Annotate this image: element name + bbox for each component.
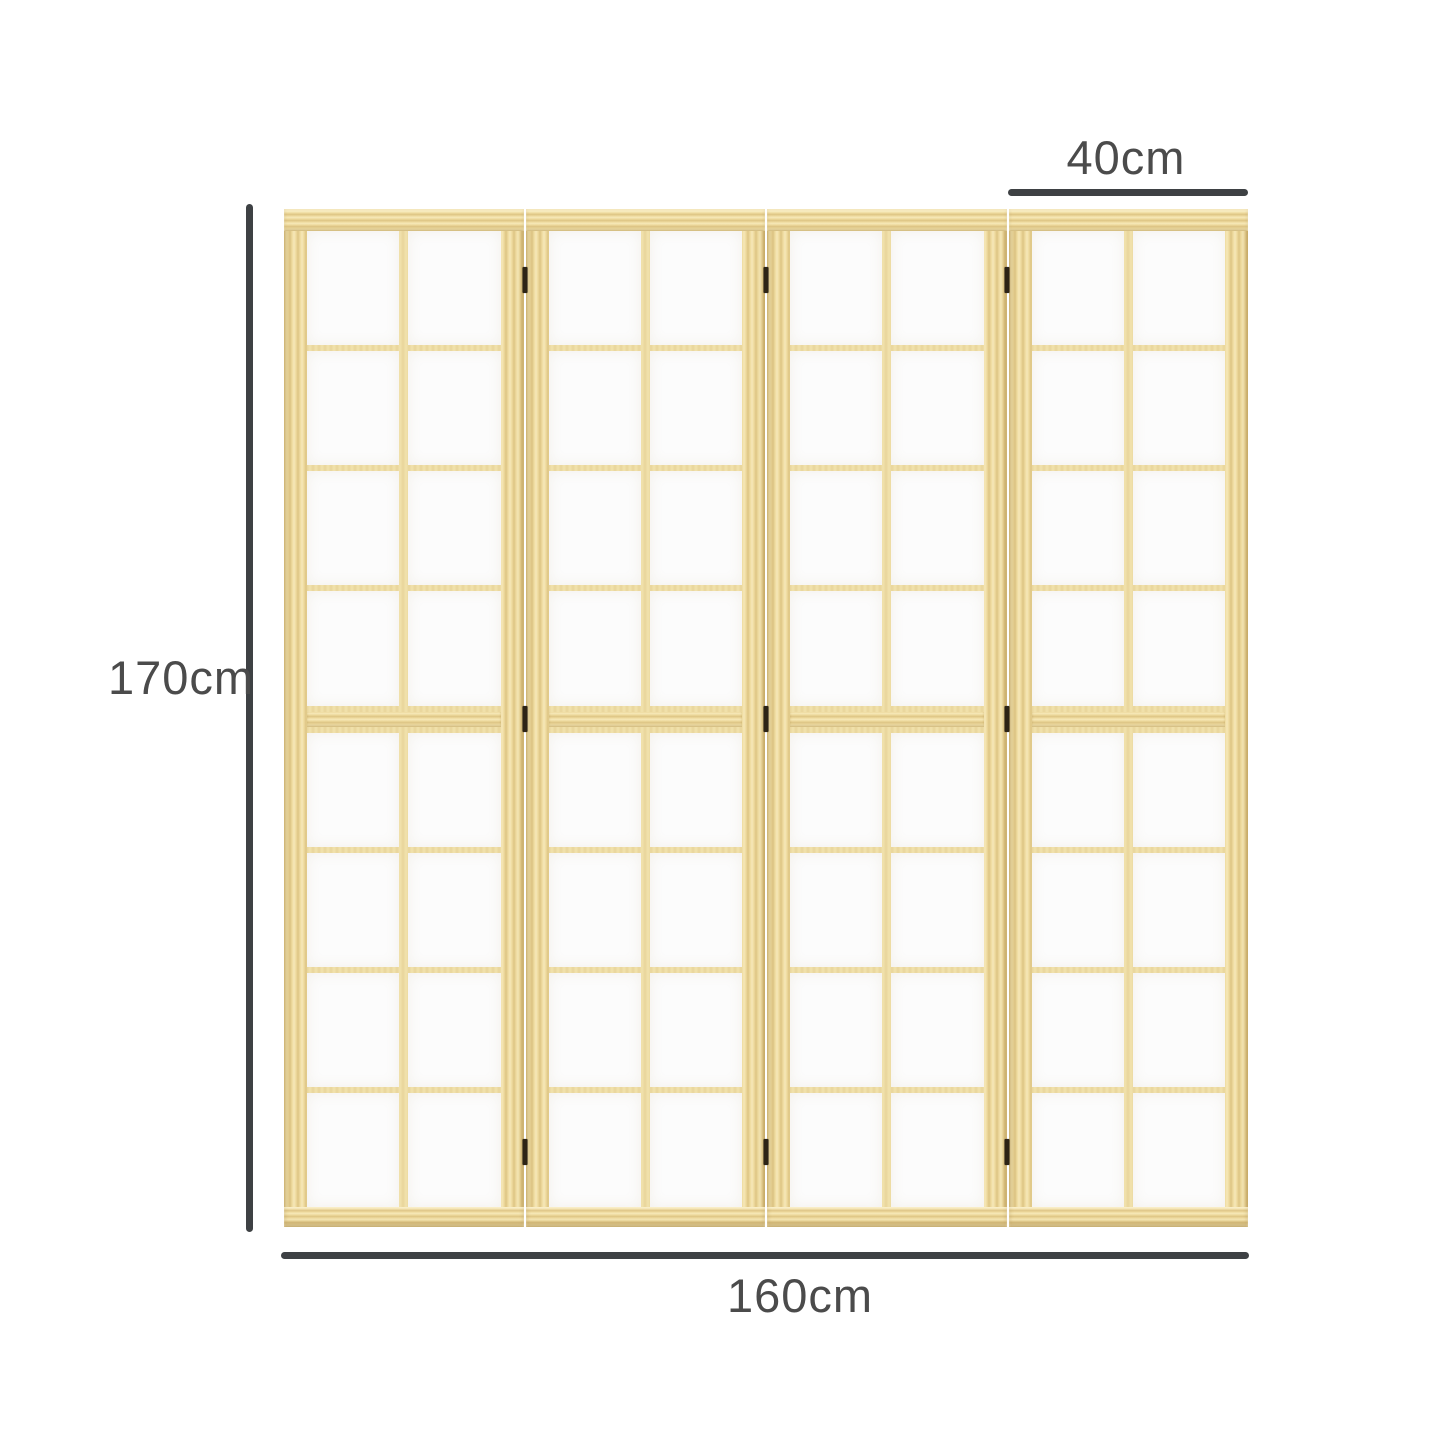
shoji-paper-cell [790, 231, 882, 345]
hinge [523, 1139, 528, 1165]
shoji-paper-cell [408, 231, 500, 345]
shoji-paper-cell [549, 591, 641, 705]
panel-middle-rail [790, 712, 984, 727]
panel-bottom-rail [1009, 1207, 1249, 1227]
shoji-paper-cell [1032, 591, 1124, 705]
shoji-paper-cell [1032, 351, 1124, 465]
shoji-paper-cell [790, 351, 882, 465]
shoji-paper-cell [1133, 1093, 1225, 1207]
shoji-paper-cell [307, 591, 399, 705]
panel-bottom-rail [284, 1207, 524, 1227]
shoji-paper-cell [408, 1093, 500, 1207]
panel-top-rail [767, 209, 1007, 231]
shoji-paper-cell [891, 351, 983, 465]
shoji-paper-cell [650, 973, 742, 1087]
shoji-paper-cell [790, 733, 882, 847]
shoji-paper-cell [1133, 231, 1225, 345]
panel-top-rail [1009, 209, 1249, 231]
divider-panel [526, 209, 766, 1227]
shoji-paper-cell [307, 1093, 399, 1207]
shoji-paper-cell [307, 471, 399, 585]
shoji-paper-cell [650, 1093, 742, 1207]
shoji-paper-cell [650, 351, 742, 465]
divider-panel [767, 209, 1007, 1227]
shoji-paper-cell [790, 471, 882, 585]
shoji-paper-cell [790, 973, 882, 1087]
shoji-paper-cell [549, 351, 641, 465]
shoji-paper-cell [891, 853, 983, 967]
panel-width-dimension-label: 40cm [1067, 134, 1186, 181]
shoji-paper-cell [1133, 591, 1225, 705]
shoji-paper-cell [650, 591, 742, 705]
shoji-paper-cell [549, 733, 641, 847]
shoji-paper-cell [549, 471, 641, 585]
hinge [1005, 706, 1010, 732]
panel-grid [790, 231, 984, 1207]
shoji-paper-cell [650, 853, 742, 967]
shoji-paper-cell [408, 591, 500, 705]
shoji-paper-cell [1032, 973, 1124, 1087]
shoji-paper-cell [1032, 471, 1124, 585]
shoji-paper-cell [307, 973, 399, 1087]
panel-top-rail [284, 209, 524, 231]
panel-top-rail [526, 209, 766, 231]
panel-middle-rail [549, 712, 743, 727]
shoji-paper-cell [1133, 733, 1225, 847]
shoji-paper-cell [549, 853, 641, 967]
shoji-paper-cell [408, 733, 500, 847]
width-dimension-label: 160cm [727, 1272, 873, 1319]
shoji-paper-cell [1133, 351, 1225, 465]
shoji-paper-cell [790, 591, 882, 705]
shoji-paper-cell [307, 231, 399, 345]
panel-width-dimension-line [1008, 189, 1248, 196]
shoji-paper-cell [790, 1093, 882, 1207]
shoji-paper-cell [891, 1093, 983, 1207]
panel-bottom-rail [526, 1207, 766, 1227]
shoji-paper-cell [408, 471, 500, 585]
shoji-paper-cell [1032, 733, 1124, 847]
divider-panel [1009, 209, 1249, 1227]
shoji-paper-cell [790, 853, 882, 967]
shoji-paper-cell [1133, 853, 1225, 967]
shoji-paper-cell [1032, 231, 1124, 345]
shoji-paper-cell [408, 853, 500, 967]
panel-middle-rail [1032, 712, 1226, 727]
hinge [523, 267, 528, 293]
shoji-paper-cell [891, 471, 983, 585]
shoji-paper-cell [408, 973, 500, 1087]
shoji-paper-cell [1032, 1093, 1124, 1207]
shoji-paper-cell [307, 733, 399, 847]
shoji-paper-cell [307, 853, 399, 967]
panel-bottom-rail [767, 1207, 1007, 1227]
hinge [1005, 267, 1010, 293]
shoji-paper-cell [1133, 471, 1225, 585]
panel-grid [307, 231, 501, 1207]
shoji-paper-cell [650, 231, 742, 345]
panel-middle-rail [307, 712, 501, 727]
shoji-paper-cell [650, 471, 742, 585]
panel-grid [549, 231, 743, 1207]
product-dimension-diagram: 170cm 160cm 40cm [0, 0, 1445, 1445]
hinge [764, 267, 769, 293]
shoji-paper-cell [891, 733, 983, 847]
shoji-paper-cell [650, 733, 742, 847]
hinge [764, 1139, 769, 1165]
hinge [1005, 1139, 1010, 1165]
hinge [764, 706, 769, 732]
hinge [523, 706, 528, 732]
height-dimension-label: 170cm [108, 654, 254, 701]
width-dimension-line [281, 1252, 1249, 1259]
divider-panel [284, 209, 524, 1227]
shoji-paper-cell [307, 351, 399, 465]
shoji-paper-cell [549, 231, 641, 345]
shoji-paper-cell [891, 591, 983, 705]
shoji-paper-cell [1032, 853, 1124, 967]
height-dimension-line [246, 204, 253, 1232]
shoji-paper-cell [1133, 973, 1225, 1087]
shoji-paper-cell [891, 973, 983, 1087]
divider-screen [284, 209, 1248, 1227]
shoji-paper-cell [408, 351, 500, 465]
shoji-paper-cell [891, 231, 983, 345]
panel-grid [1032, 231, 1226, 1207]
shoji-paper-cell [549, 973, 641, 1087]
shoji-paper-cell [549, 1093, 641, 1207]
